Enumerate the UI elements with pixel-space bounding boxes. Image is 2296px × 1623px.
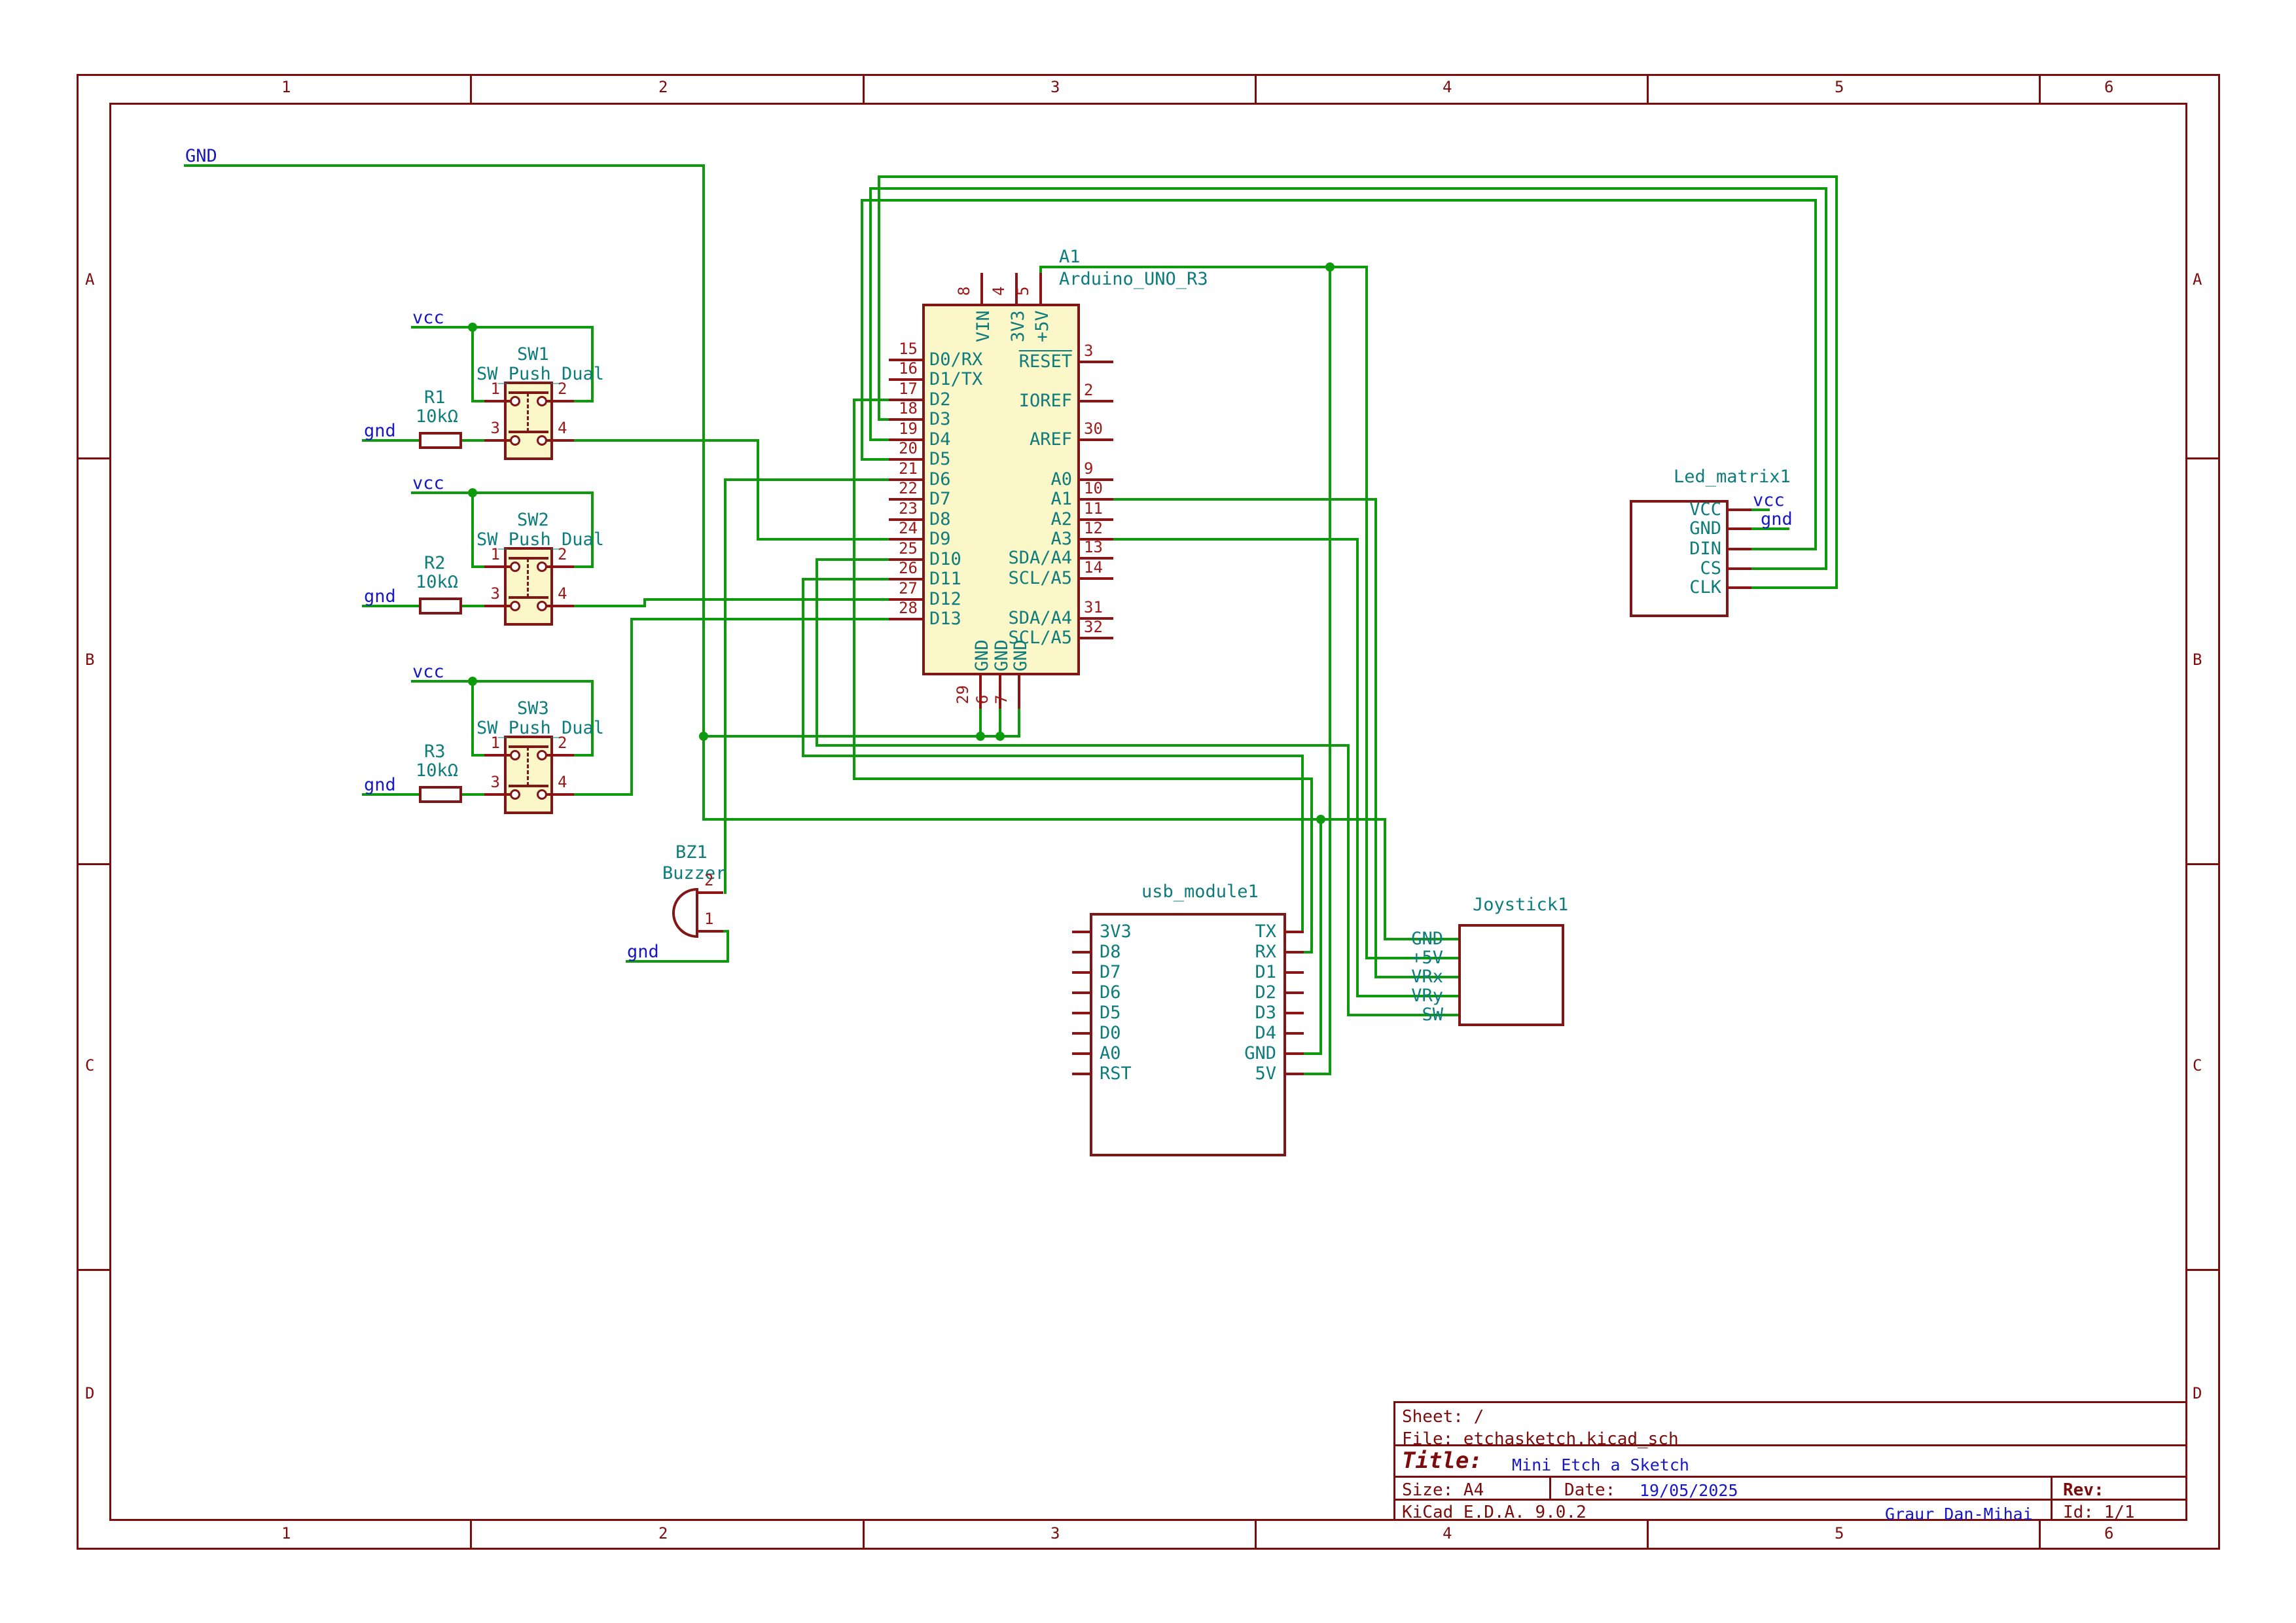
pin-stub[interactable] [1072,1073,1091,1075]
junction-dot[interactable] [996,732,1005,741]
wire-segment[interactable] [471,491,474,568]
pin-stub[interactable] [546,754,574,757]
pin-stub[interactable] [1285,1052,1304,1055]
pin-name[interactable]: D4 [929,430,951,450]
switch-actuator[interactable] [527,747,529,786]
pin-name[interactable]: RX [1255,942,1276,962]
titleblock-date-key: Date: [1564,1480,1615,1500]
pin-name[interactable]: 3V3 [1009,310,1028,342]
titleblock-line [1549,1476,1551,1501]
pin-number[interactable]: 29 [954,685,971,704]
pin-name[interactable]: D8 [929,510,951,529]
pin-name[interactable]: D12 [929,590,961,609]
pin-stub[interactable] [696,930,723,933]
pin-stub[interactable] [546,565,574,568]
pin-stub[interactable] [546,439,574,442]
pin-number[interactable]: 28 [899,599,918,616]
pin-number[interactable]: 1 [704,910,713,927]
wire-segment[interactable] [471,326,474,402]
wire-segment[interactable] [1365,266,1368,959]
pin-number[interactable]: 6 [974,695,991,704]
pin-number[interactable]: 11 [1084,500,1103,517]
wire-segment[interactable] [1018,706,1020,738]
pin-name[interactable]: D7 [1100,963,1121,982]
pin-stub[interactable] [1727,508,1751,511]
pin-name[interactable]: SW [1422,1005,1443,1025]
column-label: 6 [2104,1525,2113,1542]
pin-number[interactable]: 8 [956,287,973,296]
pin-name[interactable]: VRy [1411,986,1443,1006]
switch-contact[interactable] [510,435,520,446]
pin-stub[interactable] [1285,1032,1304,1035]
component-ref[interactable]: A1 [1059,247,1081,267]
wire-segment[interactable] [869,438,891,441]
border-row-tick [2185,1269,2220,1271]
pin-name[interactable]: RST [1100,1064,1132,1084]
pin-number[interactable]: 22 [899,480,918,497]
pin-stub[interactable] [1727,567,1751,570]
border-inner-frame [109,103,2187,105]
pin-name[interactable]: 5V [1255,1064,1276,1084]
pin-number[interactable]: 18 [899,400,918,417]
pin-number[interactable]: 5 [1014,287,1031,296]
column-label: 4 [1443,79,1452,96]
pin-name[interactable]: SDA/A4 [1008,548,1072,568]
pin-number[interactable]: 3 [491,419,500,437]
wire-segment[interactable] [702,818,1386,821]
wire-segment[interactable] [461,605,487,607]
switch-contact[interactable] [537,789,547,800]
border-outer-frame [77,74,2220,76]
wire-segment[interactable] [630,618,891,620]
component-ref[interactable]: Joystick1 [1473,895,1568,915]
pin-stub[interactable] [1285,951,1304,954]
column-label: 5 [1835,1525,1844,1542]
net-label[interactable]: vcc [412,474,444,493]
pin-number[interactable]: 4 [558,585,567,602]
wire-segment[interactable] [1329,266,1331,1075]
switch-actuator[interactable] [527,558,529,597]
wire-segment[interactable] [571,565,594,568]
row-label: C [85,1057,94,1074]
wire-segment[interactable] [1835,175,1838,589]
pin-name[interactable]: A2 [1050,510,1072,529]
wire-segment[interactable] [1374,498,1377,978]
pin-stub[interactable] [546,793,574,796]
row-label: B [85,651,94,668]
pin-number[interactable]: 12 [1084,520,1103,537]
wire-segment[interactable] [802,578,891,580]
pin-number[interactable]: 16 [899,360,918,377]
wire-segment[interactable] [726,930,729,963]
wire-segment[interactable] [471,680,594,683]
wire-segment[interactable] [802,755,1304,757]
pin-number[interactable]: 32 [1084,618,1103,635]
pin-name[interactable]: GND [1689,519,1721,539]
wire-segment[interactable] [861,458,891,461]
pin-stub[interactable] [484,400,511,402]
wire-segment[interactable] [471,491,594,494]
switch-contact[interactable] [537,601,547,611]
component-value[interactable]: 10kΩ [416,761,458,781]
pin-name[interactable]: D1 [1255,963,1276,982]
border-column-tick [1647,1519,1649,1550]
net-label[interactable]: gnd [364,587,396,607]
net-label[interactable]: GND [185,147,217,166]
wire-segment[interactable] [643,598,891,601]
wire-segment[interactable] [571,605,646,607]
switch-contact[interactable] [537,435,547,446]
wire-segment[interactable] [1301,1052,1322,1055]
pin-number[interactable]: 14 [1084,559,1103,576]
pin-name[interactable]: D9 [929,529,951,549]
pin-number[interactable]: 3 [1084,342,1093,359]
pin-name[interactable]: GND [992,639,1012,671]
border-outer-frame [2218,74,2220,1550]
component-value[interactable]: 10kΩ [416,407,458,427]
switch-contact[interactable] [510,789,520,800]
pin-stub[interactable] [546,605,574,607]
wire-segment[interactable] [869,187,1827,190]
wire-segment[interactable] [1356,538,1359,997]
pin-number[interactable]: 2 [558,380,567,397]
pin-stub[interactable] [1079,637,1113,639]
pin-name[interactable]: TX [1255,922,1276,942]
switch-contact[interactable] [510,562,520,572]
buzzer-body[interactable] [672,888,698,938]
titleblock-file: File: etchasketch.kicad_sch [1402,1429,1679,1449]
switch-contact[interactable] [510,601,520,611]
pin-number[interactable]: 13 [1084,539,1103,556]
border-row-tick [77,457,111,459]
junction-dot[interactable] [468,323,477,332]
pin-stub[interactable] [546,400,574,402]
pin-stub[interactable] [1072,971,1091,974]
pin-number[interactable]: 15 [899,340,918,357]
pin-name[interactable]: D4 [1255,1024,1276,1043]
pin-stub[interactable] [1727,527,1751,530]
pin-name[interactable]: IOREF [1019,391,1072,411]
pin-number[interactable]: 24 [899,520,918,537]
border-row-tick [77,1269,111,1271]
pin-number[interactable]: 27 [899,580,918,597]
switch-contact[interactable] [537,750,547,760]
border-row-tick [2185,457,2220,459]
titleblock-size: Size: A4 [1402,1480,1484,1500]
pin-name[interactable]: D5 [929,450,951,469]
pin-name[interactable]: CLK [1689,578,1721,597]
pin-name[interactable]: D0/RX [929,350,982,370]
wire-segment[interactable] [1384,818,1386,940]
switch-contact[interactable] [510,396,520,406]
pin-stub[interactable] [1285,991,1304,994]
pin-stub[interactable] [1727,548,1751,550]
net-label[interactable]: gnd [364,421,396,441]
pin-name[interactable]: D1/TX [929,370,982,389]
border-column-tick [470,74,472,105]
joystick-body[interactable] [1458,924,1564,1026]
junction-dot[interactable] [976,732,985,741]
pin-name[interactable]: A3 [1050,529,1072,549]
titleblock-line [1393,1401,1395,1521]
pin-stub[interactable] [1072,931,1091,933]
pin-name[interactable]: D0 [1100,1024,1121,1043]
wire-segment[interactable] [724,478,891,481]
wire-segment[interactable] [1749,548,1817,550]
pin-number[interactable]: 31 [1084,599,1103,616]
wire-segment[interactable] [861,199,1817,202]
junction-dot[interactable] [468,677,477,686]
net-label[interactable]: vcc [1753,491,1785,510]
wire-segment[interactable] [757,439,759,541]
pin-name[interactable]: D5 [1100,1003,1121,1023]
wire-segment[interactable] [816,744,1350,747]
pin-number[interactable]: 23 [899,500,918,517]
pin-stub[interactable] [980,273,983,305]
junction-dot[interactable] [699,732,708,741]
pin-stub[interactable] [1727,586,1751,589]
pin-name[interactable]: DIN [1689,539,1721,559]
pin-stub[interactable] [1285,971,1304,974]
component-value[interactable]: 10kΩ [416,573,458,592]
switch-contact[interactable] [537,562,547,572]
junction-dot[interactable] [1325,262,1335,272]
pin-name[interactable]: GND [973,639,992,671]
component-ref[interactable]: SW2 [517,510,549,530]
border-outer-frame [77,74,79,1550]
pin-number[interactable]: 2 [704,872,713,889]
wire-segment[interactable] [1310,777,1313,954]
pin-name[interactable]: 3V3 [1100,922,1132,942]
pin-stub[interactable] [1079,361,1113,363]
pin-number[interactable]: 25 [899,540,918,557]
pin-name[interactable]: VCC [1689,500,1721,520]
wire-segment[interactable] [471,680,474,757]
component-ref[interactable]: R1 [424,388,446,408]
wire-segment[interactable] [184,164,705,167]
component-ref[interactable]: Led_matrix1 [1674,467,1791,487]
pin-name[interactable]: D3 [1255,1003,1276,1023]
border-row-tick [2185,863,2220,865]
column-label: 2 [658,1525,668,1542]
resistor-body[interactable] [419,786,462,803]
wire-segment[interactable] [1111,498,1377,501]
pin-number[interactable]: 4 [990,287,1007,296]
pin-number[interactable]: 3 [491,774,500,791]
pin-name[interactable]: A1 [1050,490,1072,509]
column-label: 1 [281,1525,291,1542]
titleblock-line [1393,1401,2187,1403]
junction-dot[interactable] [1316,815,1325,824]
pin-stub[interactable] [484,754,511,757]
pin-number[interactable]: 7 [993,695,1010,704]
switch-actuator[interactable] [527,393,529,432]
pin-name[interactable]: D6 [1100,983,1121,1003]
junction-dot[interactable] [468,488,477,497]
pin-stub[interactable] [1285,931,1304,933]
pin-name[interactable]: +5V [1033,310,1052,342]
pin-name[interactable]: D3 [929,410,951,429]
component-value[interactable]: Arduino_UNO_R3 [1059,270,1208,289]
pin-number[interactable]: 1 [491,734,500,751]
pin-name[interactable]: RESET [1019,352,1072,372]
pin-number[interactable]: 30 [1084,420,1103,437]
pin-name[interactable]: +5V [1411,948,1443,968]
wire-segment[interactable] [1039,266,1368,268]
pin-name[interactable]: D2 [929,390,951,410]
wire-segment[interactable] [571,439,759,442]
wire-segment[interactable] [571,400,594,402]
pin-stub[interactable] [1072,1012,1091,1014]
pin-number[interactable]: 19 [899,420,918,437]
pin-name[interactable]: VRx [1411,967,1443,987]
row-label: D [85,1385,94,1402]
wire-segment[interactable] [702,735,1020,738]
net-label[interactable]: gnd [627,942,659,962]
pin-name[interactable]: GND [1011,639,1031,671]
pin-name[interactable]: D7 [929,490,951,509]
pin-name[interactable]: D6 [929,470,951,490]
wire-segment[interactable] [724,478,726,894]
wire-segment[interactable] [1301,755,1304,933]
wire-segment[interactable] [757,538,891,541]
wire-segment[interactable] [461,439,487,442]
titleblock-app: KiCad E.D.A. 9.0.2 [1402,1503,1587,1522]
row-label: A [2193,271,2202,288]
pin-name[interactable]: GND [1244,1044,1276,1063]
wire-segment[interactable] [853,777,1313,780]
pin-stub[interactable] [484,565,511,568]
pin-number[interactable]: 1 [491,380,500,397]
pin-number[interactable]: 2 [558,546,567,563]
wire-segment[interactable] [1825,187,1827,570]
pin-stub[interactable] [484,439,511,442]
net-label[interactable]: vcc [412,308,444,328]
pin-name[interactable]: D2 [1255,983,1276,1003]
column-label: 2 [658,79,668,96]
pin-stub[interactable] [1072,991,1091,994]
border-column-tick [470,1519,472,1550]
pin-number[interactable]: 2 [1084,382,1093,399]
component-ref[interactable]: SW3 [517,699,549,719]
pin-number[interactable]: 26 [899,560,918,577]
schematic-canvas[interactable]: 112233445566AABBCCDDA1Arduino_UNO_R315D0… [0,0,2296,1623]
pin-number[interactable]: 9 [1084,460,1093,477]
component-value[interactable]: Buzzer [662,864,726,883]
pin-stub[interactable] [1079,577,1113,580]
wire-segment[interactable] [1749,567,1827,570]
switch-contact[interactable] [537,396,547,406]
titleblock-line [2051,1476,2053,1521]
component-ref[interactable]: R2 [424,554,446,573]
resistor-body[interactable] [419,432,462,449]
wire-segment[interactable] [571,754,594,757]
pin-number[interactable]: 21 [899,460,918,477]
wire-segment[interactable] [1814,199,1817,550]
wire-segment[interactable] [802,578,804,757]
pin-stub[interactable] [1079,400,1113,402]
pin-stub[interactable] [1039,273,1042,305]
pin-stub[interactable] [1072,1052,1091,1055]
wire-segment[interactable] [702,164,705,821]
pin-number[interactable]: 3 [491,585,500,602]
pin-name[interactable]: D13 [929,609,961,629]
wire-segment[interactable] [861,199,863,461]
component-ref[interactable]: usb_module1 [1141,882,1259,902]
wire-segment[interactable] [1347,744,1350,1016]
net-label[interactable]: gnd [1761,510,1793,529]
wire-segment[interactable] [630,618,633,796]
titleblock-id: Id: 1/1 [2063,1503,2135,1522]
pin-stub[interactable] [1285,1073,1304,1075]
net-label[interactable]: gnd [364,776,396,795]
pin-stub[interactable] [484,605,511,607]
pin-name[interactable]: SDA/A4 [1008,609,1072,628]
wire-segment[interactable] [1319,818,1322,1055]
border-column-tick [863,74,865,105]
switch-contact[interactable] [510,750,520,760]
pin-name[interactable]: AREF [1030,430,1072,450]
wire-segment[interactable] [853,399,855,780]
wire-segment[interactable] [869,187,872,441]
net-label[interactable]: vcc [412,662,444,682]
pin-name[interactable]: A0 [1100,1044,1121,1063]
titleblock-date-value: 19/05/2025 [1640,1481,1738,1500]
pin-name[interactable]: A0 [1050,470,1072,490]
pin-name[interactable]: D11 [929,569,961,589]
pin-stub[interactable] [484,793,511,796]
wire-segment[interactable] [461,793,487,796]
pin-stub[interactable] [696,891,723,894]
titleblock-author: Graur Dan-Mihai [1885,1505,2033,1524]
pin-number[interactable]: 4 [558,419,567,437]
pin-name[interactable]: D8 [1100,942,1121,962]
wire-segment[interactable] [471,326,594,329]
pin-number[interactable]: 17 [899,380,918,397]
pin-stub[interactable] [889,618,924,620]
wire-segment[interactable] [878,175,1838,178]
resistor-body[interactable] [419,597,462,615]
pin-name[interactable]: GND [1411,929,1443,949]
pin-name[interactable]: CS [1700,559,1721,579]
wire-segment[interactable] [816,558,818,747]
component-ref[interactable]: R3 [424,742,446,762]
pin-name[interactable]: VIN [974,310,994,342]
wire-segment[interactable] [571,793,633,796]
pin-number[interactable]: 20 [899,440,918,457]
wire-segment[interactable] [1301,1073,1331,1075]
pin-number[interactable]: 4 [558,774,567,791]
pin-stub[interactable] [1079,438,1113,441]
column-label: 6 [2104,79,2113,96]
pin-stub[interactable] [1285,1012,1304,1014]
pin-number[interactable]: 2 [558,734,567,751]
wire-segment[interactable] [853,399,891,401]
wire-segment[interactable] [1111,538,1359,541]
pin-stub[interactable] [1072,951,1091,954]
wire-segment[interactable] [878,175,880,421]
pin-name[interactable]: SCL/A5 [1008,569,1072,588]
wire-segment[interactable] [1356,995,1460,997]
wire-segment[interactable] [1749,586,1838,589]
component-ref[interactable]: BZ1 [675,843,708,863]
pin-name[interactable]: D10 [929,550,961,569]
pin-number[interactable]: 10 [1084,480,1103,497]
component-ref[interactable]: SW1 [517,345,549,365]
pin-stub[interactable] [1072,1032,1091,1035]
pin-stub[interactable] [1018,674,1020,709]
pin-number[interactable]: 1 [491,546,500,563]
